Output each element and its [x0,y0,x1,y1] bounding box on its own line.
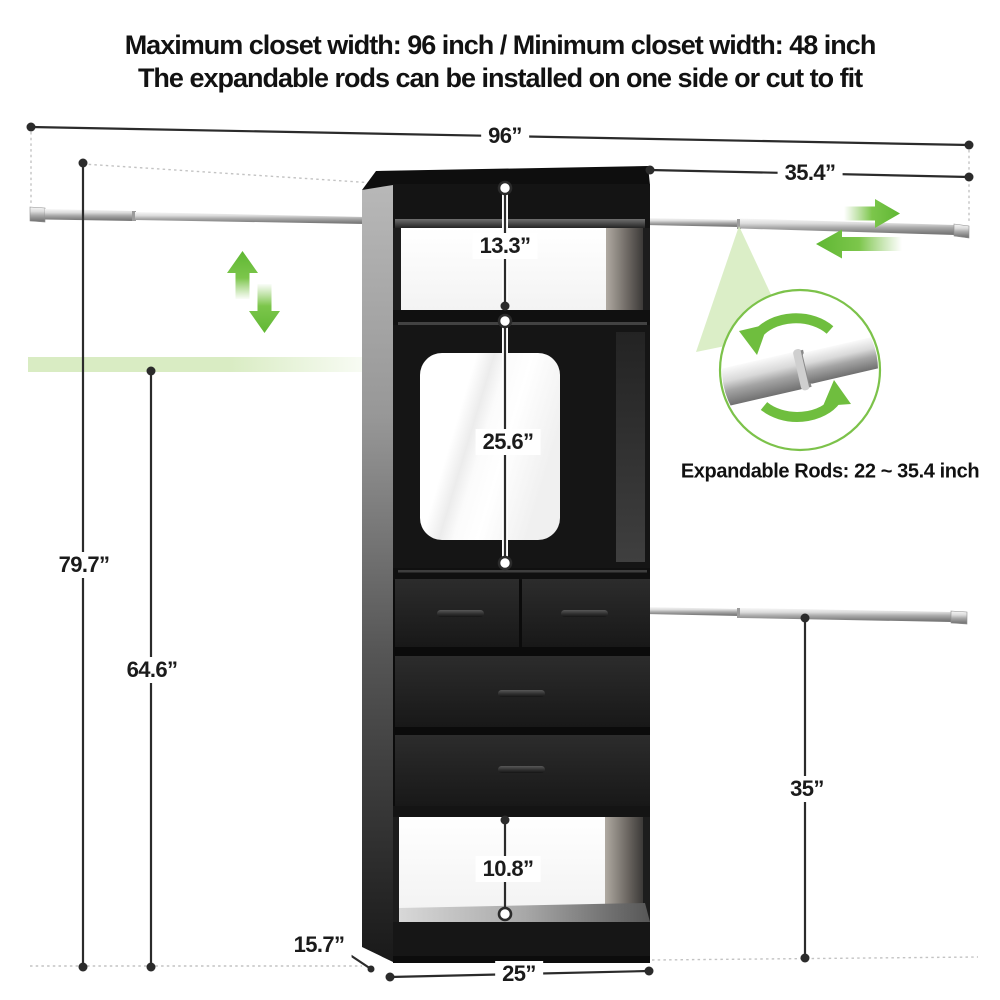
dim-label-total-height: 79.7” [52,552,117,578]
expandable-rods-callout-label: Expandable Rods: 22 ~ 35.4 inch [681,461,979,484]
up-down-arrows-icon [227,251,280,333]
dim-label-lower-rod-height: 35” [783,776,831,802]
dim-label-overall-width: 96” [481,123,529,149]
dim-label-bottom-compartment-height: 10.8” [476,856,541,882]
dim-label-upper-rod-extension: 35.4” [778,160,843,186]
annotations-layer [0,0,1000,1000]
dim-label-middle-compartment-height: 25.6” [476,429,541,455]
dim-label-unit-depth: 15.7” [287,932,352,958]
left-right-arrows-icon [816,199,902,259]
dim-label-top-shelf-height: 13.3” [473,233,538,259]
dim-label-unit-width: 25” [495,961,543,987]
closet-dimension-diagram: Maximum closet width: 96 inch / Minimum … [0,0,1000,1000]
dim-label-left-rod-height: 64.6” [120,657,185,683]
